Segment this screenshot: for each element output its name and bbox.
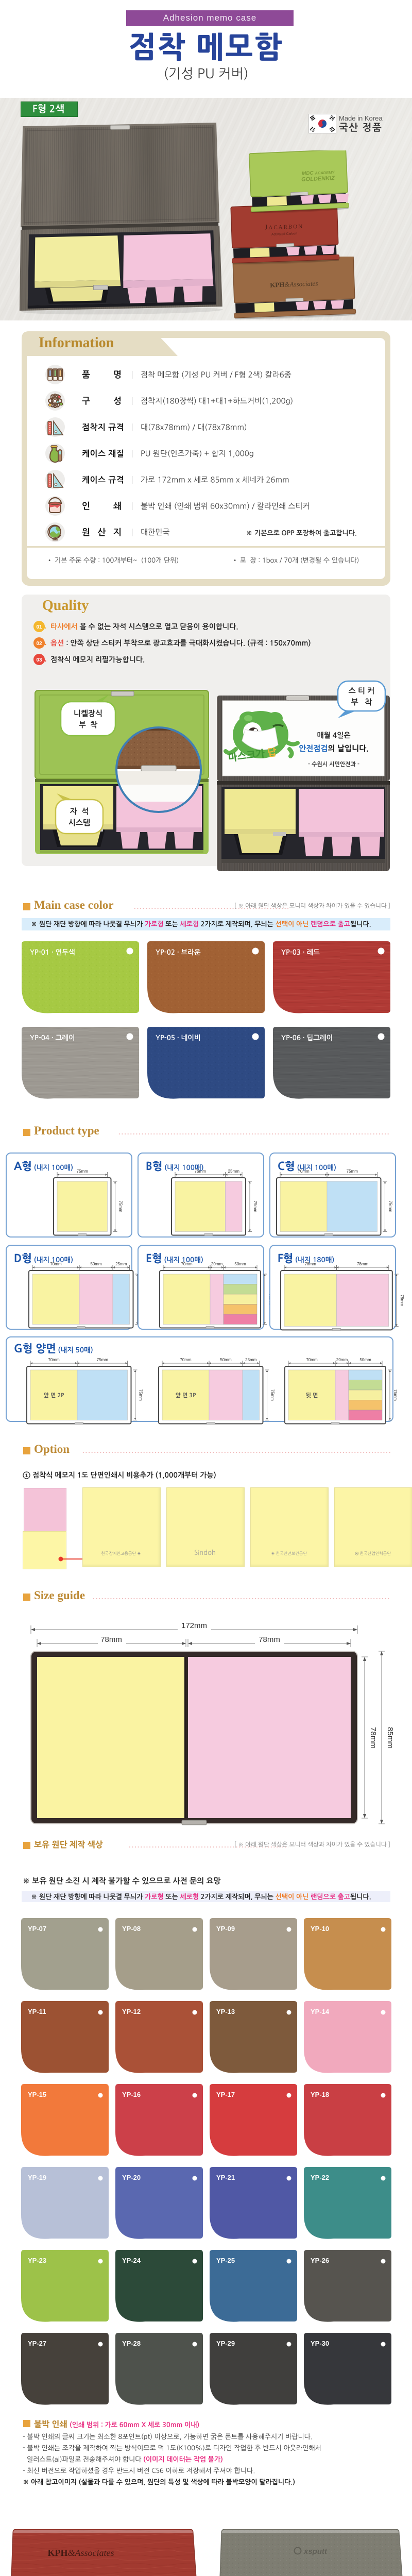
svg-text:75mm: 75mm xyxy=(139,1389,143,1401)
svg-text:78mm: 78mm xyxy=(100,1635,122,1644)
svg-text:02: 02 xyxy=(36,641,42,647)
svg-text:50mm: 50mm xyxy=(220,1358,232,1362)
svg-text:20mm: 20mm xyxy=(336,1358,348,1362)
svg-text:03: 03 xyxy=(36,657,42,663)
svg-text:70mm: 70mm xyxy=(180,1358,192,1362)
svg-text:75mm: 75mm xyxy=(388,1201,393,1213)
svg-text:25mm: 25mm xyxy=(115,1262,127,1266)
svg-text:75mm: 75mm xyxy=(97,1358,109,1362)
svg-text:70mm: 70mm xyxy=(181,1262,193,1266)
svg-text:75mm: 75mm xyxy=(195,1169,207,1174)
svg-text:25mm: 25mm xyxy=(228,1169,240,1174)
svg-text:20mm: 20mm xyxy=(211,1262,223,1266)
svg-text:50mm: 50mm xyxy=(90,1262,102,1266)
svg-text:75mm: 75mm xyxy=(347,1169,358,1174)
svg-text:KPH&Associates: KPH&Associates xyxy=(48,2548,114,2558)
svg-text:78mm: 78mm xyxy=(357,1262,369,1266)
svg-text:50mm: 50mm xyxy=(234,1262,246,1266)
svg-text:75mm: 75mm xyxy=(393,1389,398,1401)
svg-text:78mm: 78mm xyxy=(369,1727,377,1749)
svg-text:70mm: 70mm xyxy=(306,1358,318,1362)
svg-text:78mm: 78mm xyxy=(400,1295,404,1307)
svg-text:70mm: 70mm xyxy=(50,1262,62,1266)
svg-text:50mm: 50mm xyxy=(359,1358,371,1362)
svg-text:75mm: 75mm xyxy=(77,1169,89,1174)
svg-text:xsputt: xsputt xyxy=(303,2547,328,2556)
svg-text:1: 1 xyxy=(25,1473,28,1479)
svg-text:25mm: 25mm xyxy=(245,1358,257,1362)
svg-text:78mm: 78mm xyxy=(305,1262,317,1266)
svg-text:75mm: 75mm xyxy=(253,1201,257,1213)
svg-text:01: 01 xyxy=(36,624,42,630)
svg-text:75mm: 75mm xyxy=(118,1201,123,1213)
svg-text:70mm: 70mm xyxy=(298,1169,310,1174)
svg-text:70mm: 70mm xyxy=(48,1358,60,1362)
svg-text:78mm: 78mm xyxy=(259,1635,280,1644)
svg-text:85mm: 85mm xyxy=(386,1727,394,1749)
svg-text:172mm: 172mm xyxy=(181,1621,207,1630)
svg-text:75mm: 75mm xyxy=(270,1389,275,1401)
